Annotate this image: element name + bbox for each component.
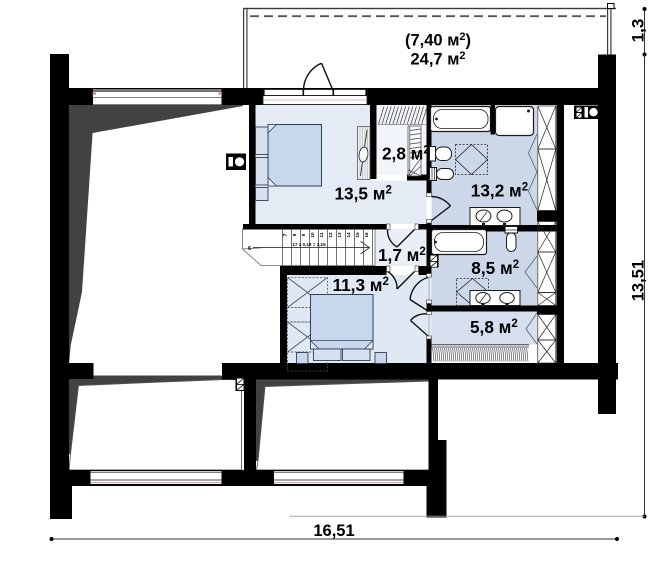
svg-text:6: 6 [248, 246, 251, 252]
svg-text:16: 16 [364, 232, 369, 238]
svg-text:17 x 0,19 = 3,15: 17 x 0,19 = 3,15 [292, 242, 326, 247]
svg-text:14: 14 [346, 232, 351, 238]
svg-text:8,5 м2: 8,5 м2 [471, 258, 519, 278]
svg-text:7: 7 [283, 233, 289, 236]
svg-text:15: 15 [355, 232, 360, 238]
svg-text:12: 12 [328, 232, 333, 238]
svg-text:11: 11 [319, 232, 324, 237]
svg-text:8: 8 [292, 233, 297, 236]
svg-text:16,51: 16,51 [313, 522, 354, 540]
svg-text:13,2 м2: 13,2 м2 [471, 181, 528, 201]
svg-text:1,7 м2: 1,7 м2 [378, 245, 426, 265]
svg-text:13: 13 [337, 232, 342, 238]
svg-text:9: 9 [301, 233, 306, 236]
svg-text:24,7 м2: 24,7 м2 [411, 50, 466, 69]
svg-text:10: 10 [310, 232, 315, 238]
svg-text:5,8 м2: 5,8 м2 [470, 317, 518, 337]
svg-text:13,5 м2: 13,5 м2 [335, 183, 392, 203]
svg-text:2,8 м2: 2,8 м2 [382, 144, 430, 164]
svg-text:13,51: 13,51 [630, 260, 648, 301]
svg-text:11,3 м2: 11,3 м2 [333, 275, 389, 295]
svg-text:1,3: 1,3 [629, 19, 648, 43]
